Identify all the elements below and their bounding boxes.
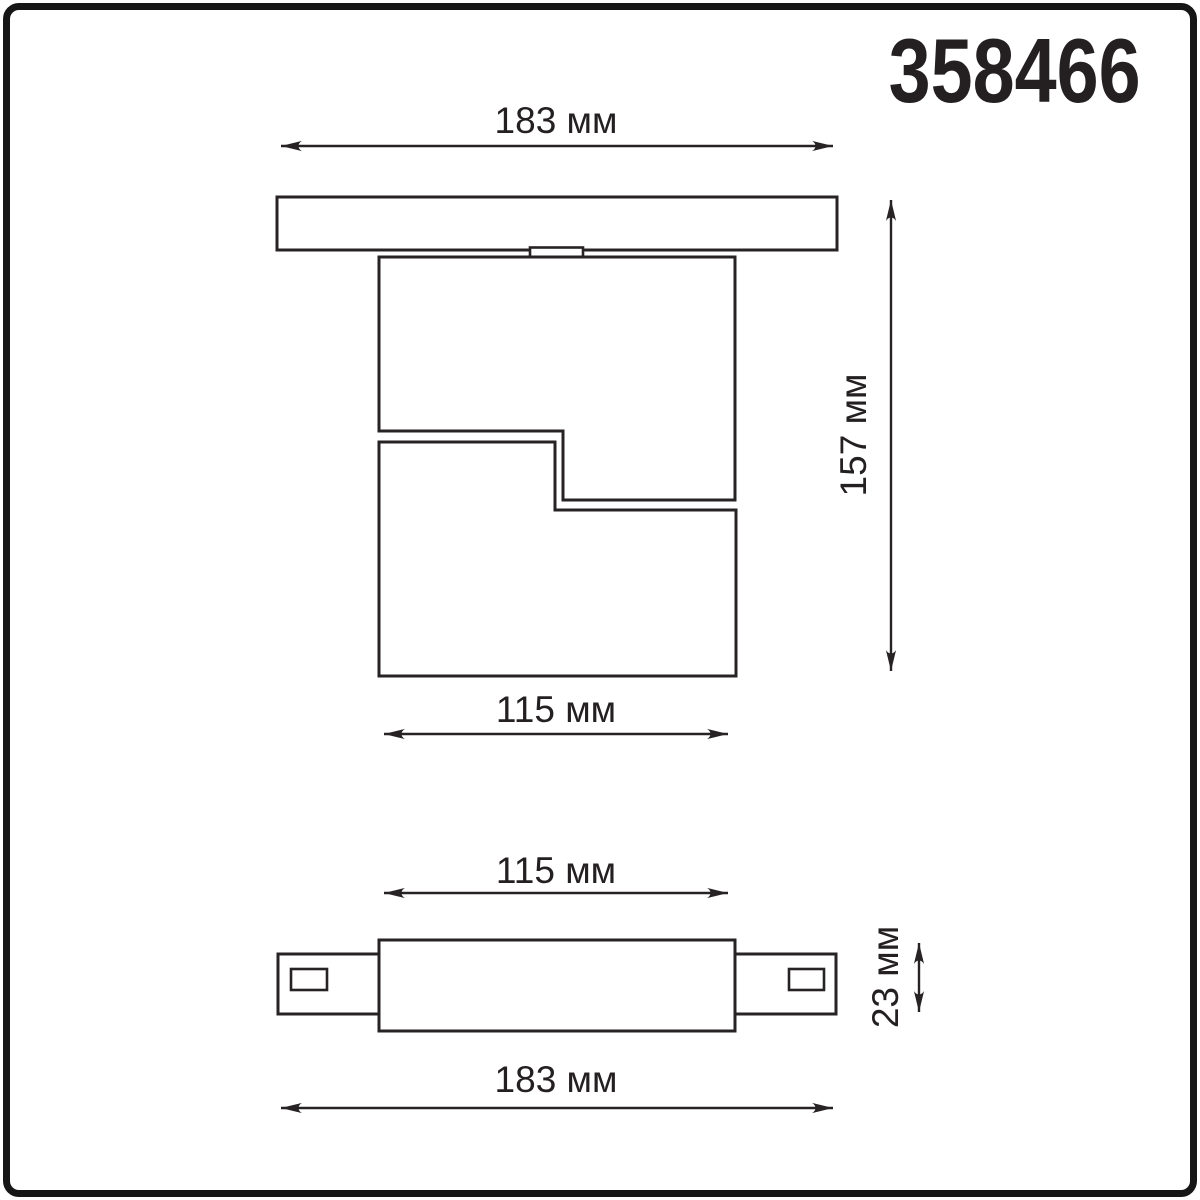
side-view [278, 940, 836, 1031]
track-rail [277, 197, 837, 250]
side-right-height-label: 23 мм [865, 926, 906, 1028]
adapter-body [379, 940, 735, 1031]
side-bottom-width-label: 183 мм [495, 1059, 618, 1100]
front-bottom-width-label: 115 мм [496, 689, 616, 730]
left-slot-hole [291, 969, 327, 990]
front-view [277, 197, 837, 676]
dimension-drawing: 183 мм 157 мм 115 мм 115 мм 23 мм [0, 0, 1200, 1200]
right-slot-hole [789, 969, 824, 990]
drawing-sheet: 358466 183 мм 157 мм 1 [0, 0, 1200, 1200]
front-right-height-label: 157 мм [833, 374, 874, 497]
front-top-width-label: 183 мм [495, 100, 618, 141]
side-top-width-label: 115 мм [496, 850, 616, 891]
